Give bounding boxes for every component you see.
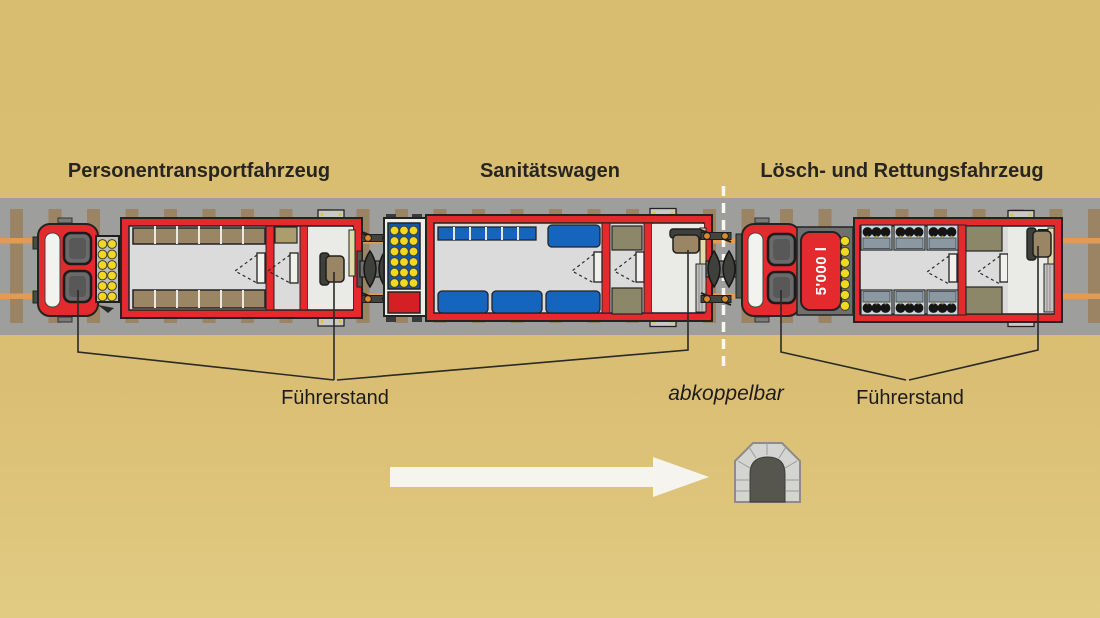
luggage-cabinet [275, 227, 297, 243]
driver-cab-label-left: Führerstand [281, 387, 389, 409]
tunnel-icon [735, 443, 800, 502]
signal-light-panel [96, 236, 119, 302]
passenger-car-body [121, 210, 362, 326]
driver-seat [1027, 228, 1051, 260]
stretcher-bench [492, 291, 542, 313]
door-leaf [949, 254, 957, 282]
vehicle-sanitaetswagen [384, 209, 712, 327]
detachable-label: abkoppelbar [668, 382, 785, 405]
cab-seat [64, 233, 91, 264]
door-leaf [290, 253, 298, 283]
stretcher-bench [548, 225, 600, 247]
door-leaf [636, 252, 644, 282]
door-leaf [594, 252, 602, 282]
crew-bench [861, 225, 892, 250]
door-leaf [1000, 254, 1008, 282]
crew-bench [861, 290, 892, 315]
vehicle-personentransportfahrzeug [33, 210, 362, 326]
driver-cab-label-right: Führerstand [856, 387, 964, 409]
title-loesch-und-rettungsfahrzeug: Lösch- und Rettungsfahrzeug [760, 160, 1043, 182]
crew-bench [927, 290, 958, 315]
title-sanitaetswagen: Sanitätswagen [480, 160, 620, 182]
equipment-cabinet [612, 288, 642, 314]
front-driver-cab [742, 218, 800, 322]
diagram-canvas: Personentransportfahrzeug Sanitätswagen … [0, 0, 1100, 618]
driver-console [349, 230, 355, 276]
stretcher-bench [438, 291, 488, 313]
windshield [748, 233, 763, 307]
water-tank-module: 5'000 l [797, 227, 853, 315]
cab-seat [768, 234, 795, 265]
crew-bench [894, 290, 925, 315]
radiator-panel [696, 264, 706, 312]
door-leaf [257, 253, 265, 283]
driver-seat [320, 253, 344, 285]
driver-seat [670, 229, 702, 253]
rescue-car-body [854, 211, 1062, 327]
title-personentransportfahrzeug: Personentransportfahrzeug [68, 160, 330, 182]
windshield [45, 233, 60, 307]
equipment-cabinet [966, 226, 1002, 251]
radiator-panel [1044, 264, 1054, 312]
crew-bench [894, 225, 925, 250]
equipment-cabinet [966, 287, 1002, 314]
end-platform [384, 214, 426, 322]
red-panel [388, 292, 420, 313]
equipment-cabinet [612, 226, 642, 250]
crew-bench [927, 225, 958, 250]
vehicle-loesch-und-rettungsfahrzeug: 5'000 l [742, 211, 1062, 327]
stretcher-bench [546, 291, 600, 313]
rescue-train-diagram: Personentransportfahrzeug Sanitätswagen … [0, 0, 1100, 618]
tank-capacity-label: 5'000 l [813, 247, 830, 296]
tunnel-opening [750, 457, 785, 502]
medical-car-body [426, 209, 712, 327]
